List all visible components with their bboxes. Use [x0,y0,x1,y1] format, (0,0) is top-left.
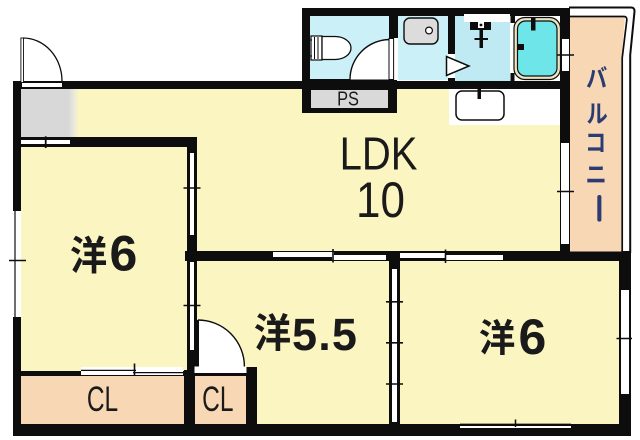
svg-text:5.5: 5.5 [292,309,358,360]
svg-text:10: 10 [356,171,405,227]
svg-text:6: 6 [519,309,547,365]
svg-text:PS: PS [337,87,359,110]
svg-text:6: 6 [110,226,138,282]
svg-text:CL: CL [202,381,233,419]
svg-text:CL: CL [87,381,118,419]
